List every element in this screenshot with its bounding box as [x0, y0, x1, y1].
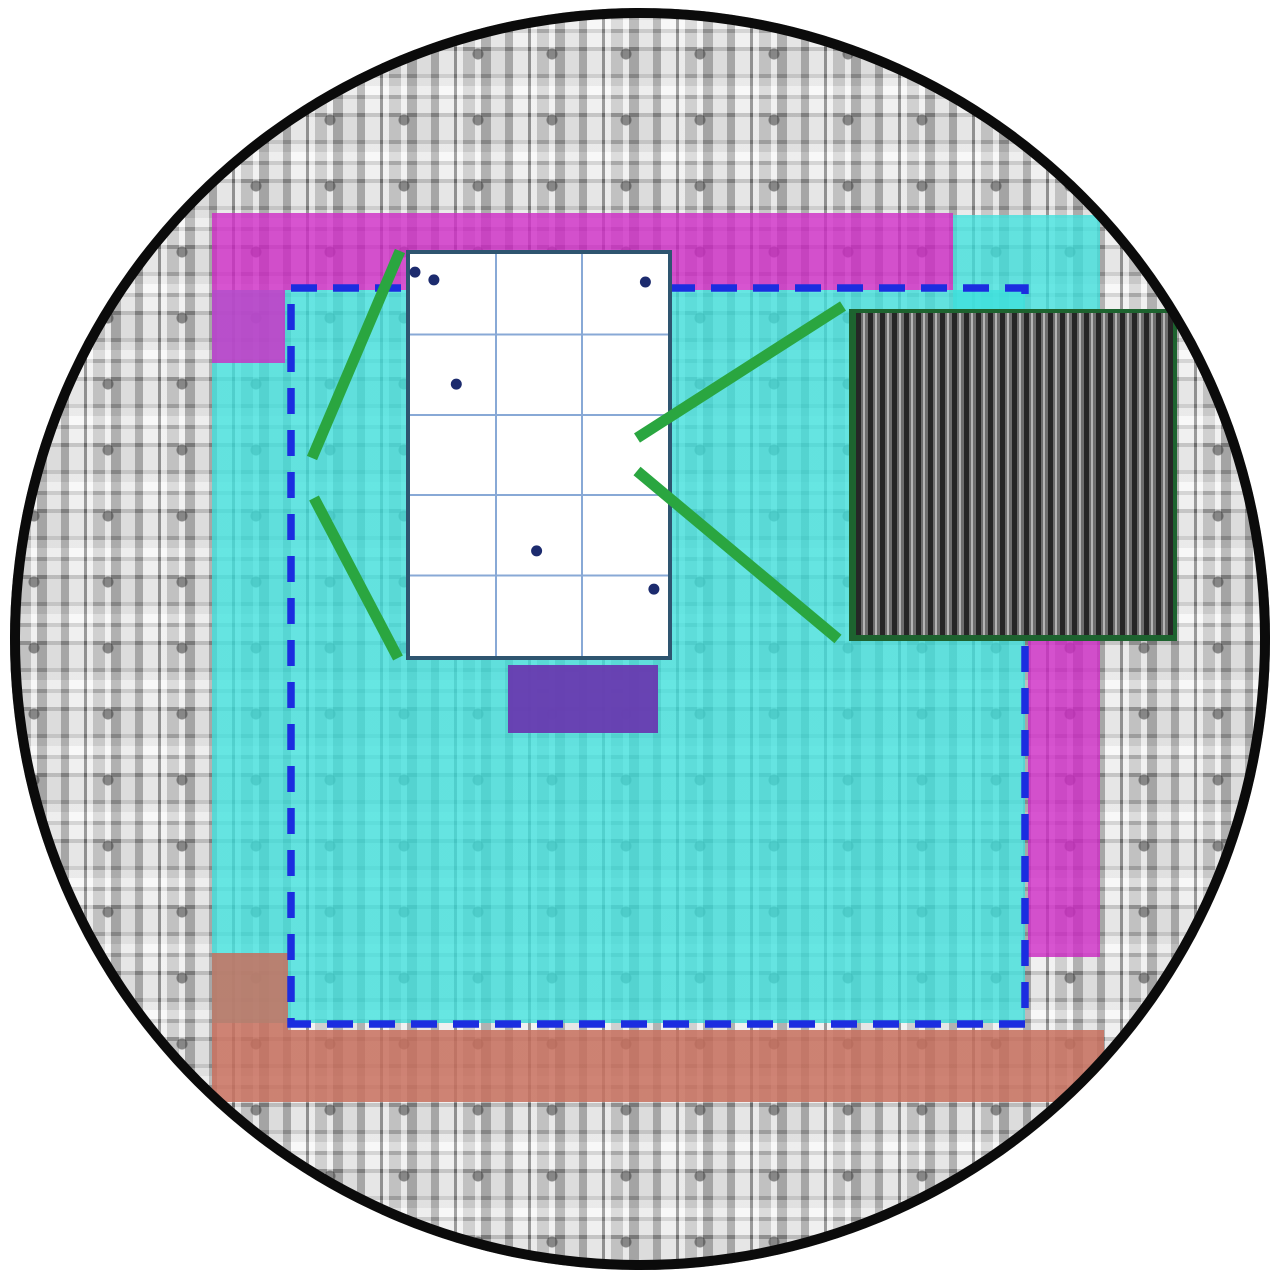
- region-magenta-left-extension: [212, 290, 285, 363]
- region-cyan-top-right: [953, 215, 1100, 318]
- sem-stripe-patch: [849, 309, 1177, 641]
- die-map-inset: [406, 250, 672, 660]
- region-magenta-right-column: [1028, 641, 1100, 957]
- region-salmon-left-column: [212, 953, 288, 1030]
- wafer-figure: [0, 0, 1280, 1280]
- region-purple-block: [508, 665, 658, 733]
- region-salmon-bottom-band: [212, 1030, 1104, 1102]
